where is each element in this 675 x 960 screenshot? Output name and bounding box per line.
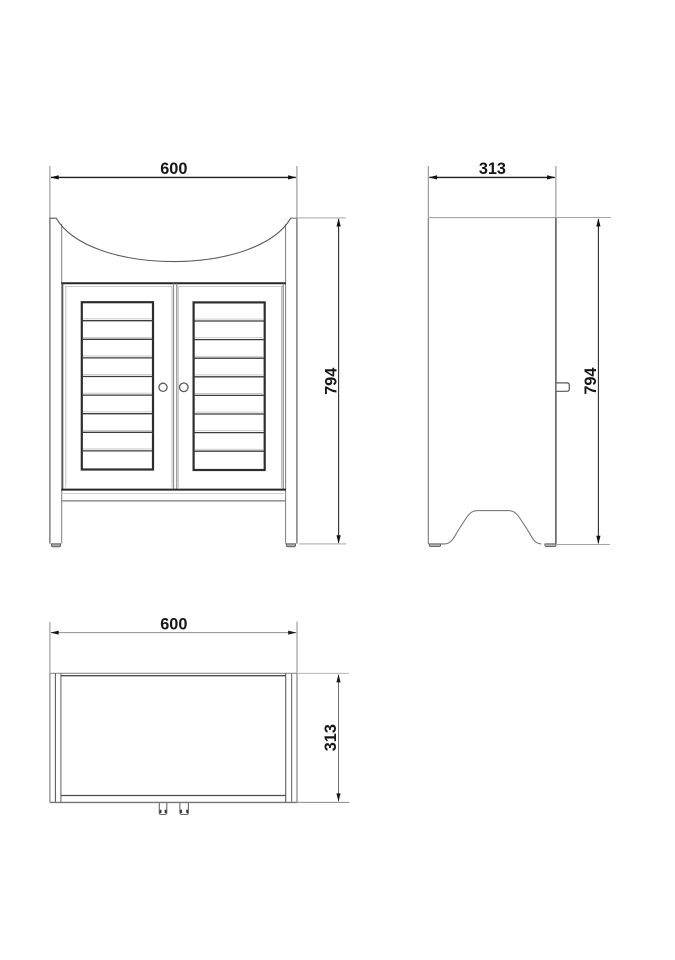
svg-text:600: 600 [160, 615, 187, 633]
svg-text:794: 794 [582, 368, 600, 395]
svg-text:794: 794 [322, 368, 340, 395]
svg-text:600: 600 [160, 160, 187, 178]
svg-text:313: 313 [322, 724, 340, 751]
svg-text:313: 313 [479, 160, 506, 178]
